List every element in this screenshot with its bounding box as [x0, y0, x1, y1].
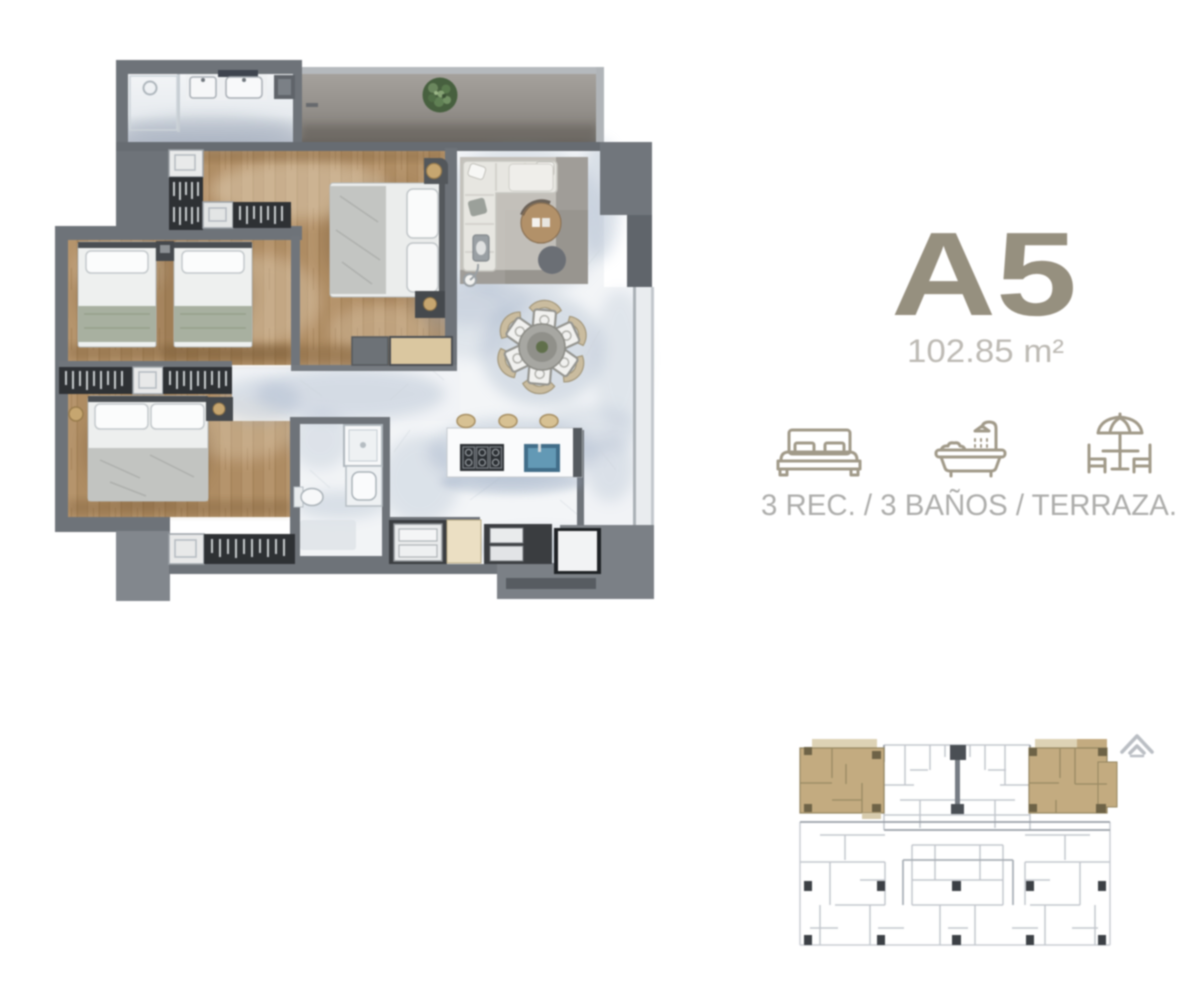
svg-text:A5: A5: [891, 208, 1077, 341]
svg-text:102.85 m²: 102.85 m²: [907, 333, 1064, 369]
svg-text:3 REC. / 3 BAÑOS / TERRAZA.: 3 REC. / 3 BAÑOS / TERRAZA.: [761, 488, 1177, 522]
